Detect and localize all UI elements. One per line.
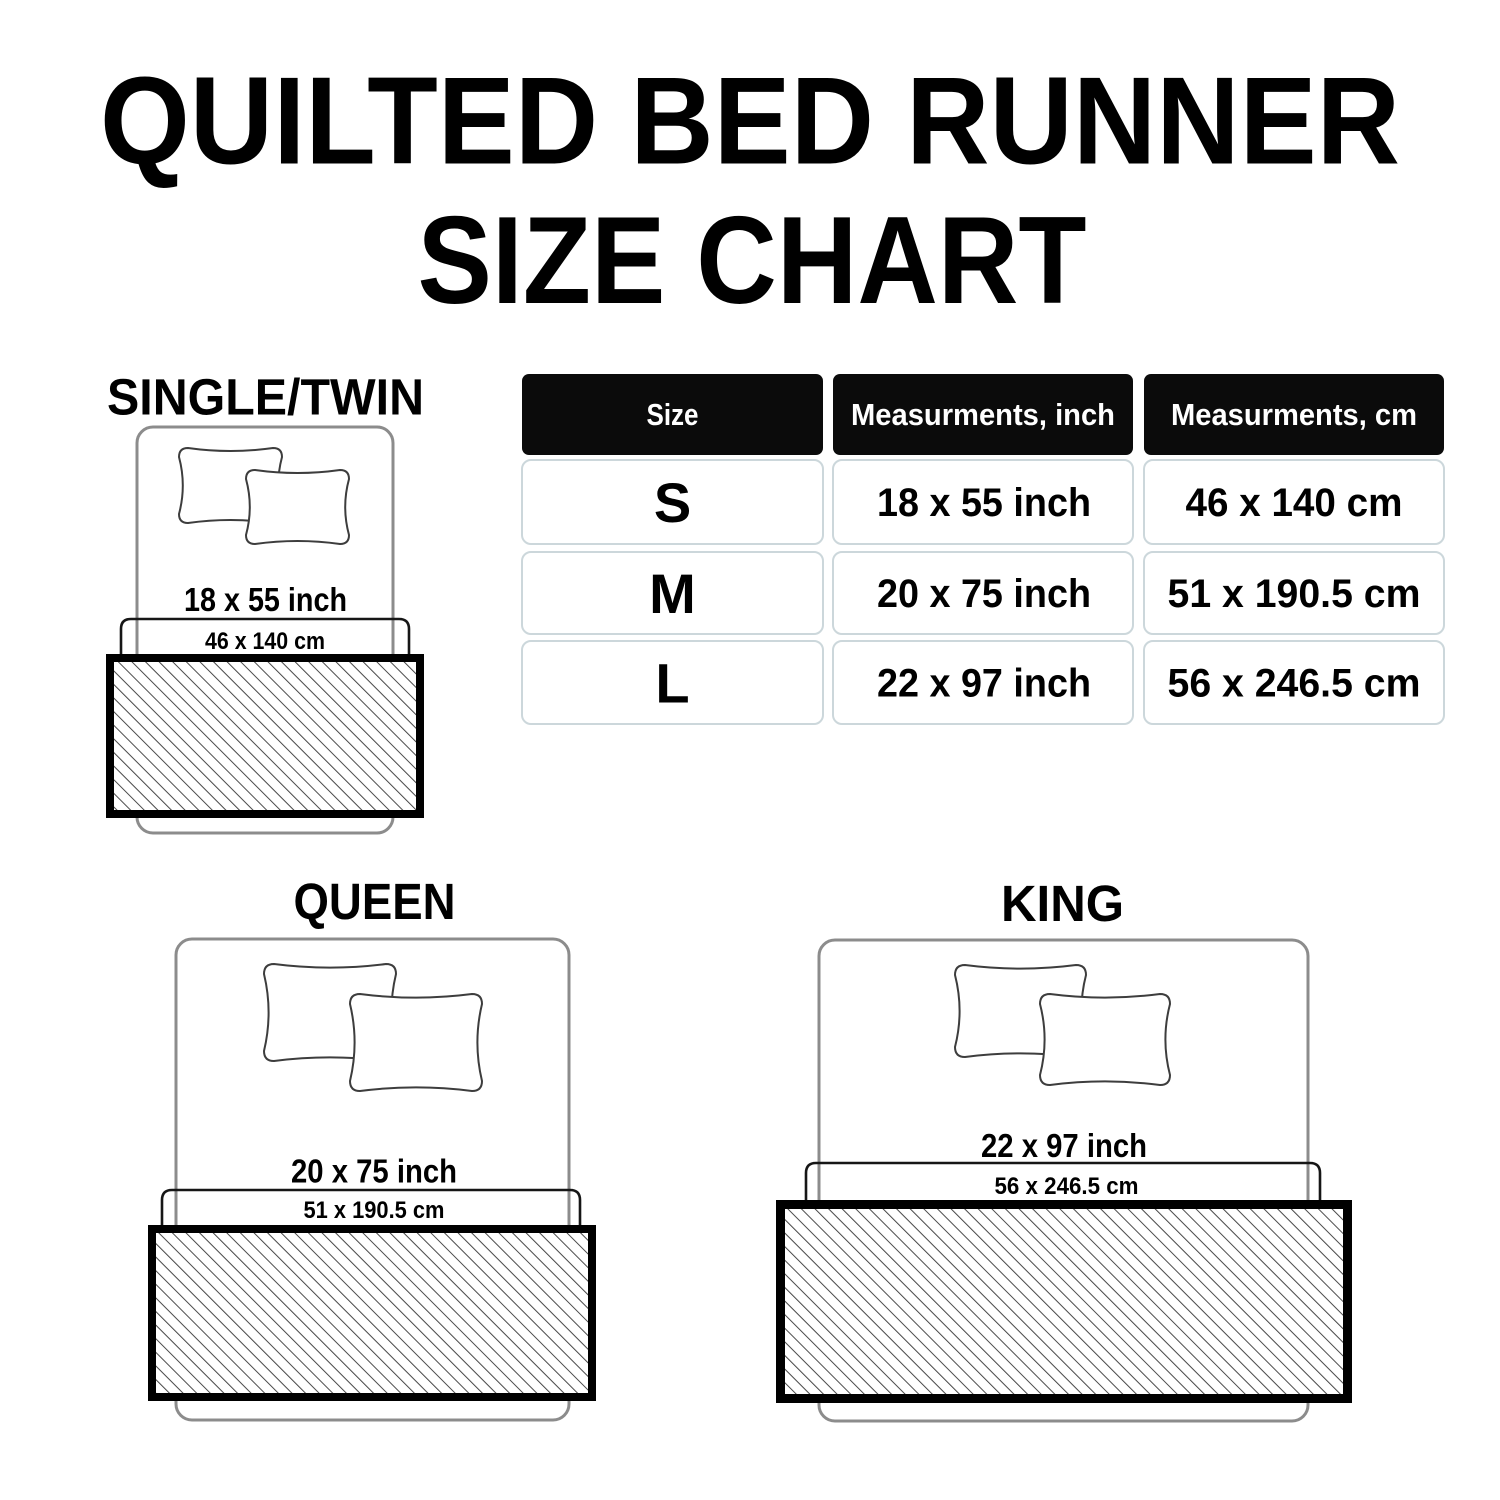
svg-text:51 x 190.5 cm: 51 x 190.5 cm [304,1197,445,1224]
svg-text:20 x 75 inch: 20 x 75 inch [877,572,1091,616]
svg-text:Measurments, inch: Measurments, inch [851,397,1115,432]
svg-text:Measurments, cm: Measurments, cm [1171,397,1417,432]
svg-text:SIZE CHART: SIZE CHART [418,192,1087,330]
svg-text:46 x 140 cm: 46 x 140 cm [1186,481,1403,525]
svg-text:M: M [649,562,696,625]
svg-text:46 x 140 cm: 46 x 140 cm [205,628,325,655]
svg-text:22 x 97 inch: 22 x 97 inch [981,1127,1147,1164]
svg-text:20 x 75 inch: 20 x 75 inch [291,1153,457,1190]
svg-text:SINGLE/TWIN: SINGLE/TWIN [107,369,424,426]
svg-text:KING: KING [1001,875,1124,932]
svg-text:S: S [654,471,691,534]
svg-text:Size: Size [647,397,699,432]
svg-text:18 x 55 inch: 18 x 55 inch [184,581,347,618]
svg-text:18 x 55 inch: 18 x 55 inch [877,481,1091,525]
svg-text:22 x 97 inch: 22 x 97 inch [877,661,1091,705]
svg-text:L: L [655,652,689,715]
svg-text:51 x 190.5 cm: 51 x 190.5 cm [1168,572,1421,616]
svg-text:QUEEN: QUEEN [294,873,456,930]
svg-text:56 x 246.5 cm: 56 x 246.5 cm [995,1173,1139,1200]
svg-text:QUILTED BED RUNNER: QUILTED BED RUNNER [100,53,1400,191]
svg-text:56 x 246.5 cm: 56 x 246.5 cm [1168,661,1421,705]
